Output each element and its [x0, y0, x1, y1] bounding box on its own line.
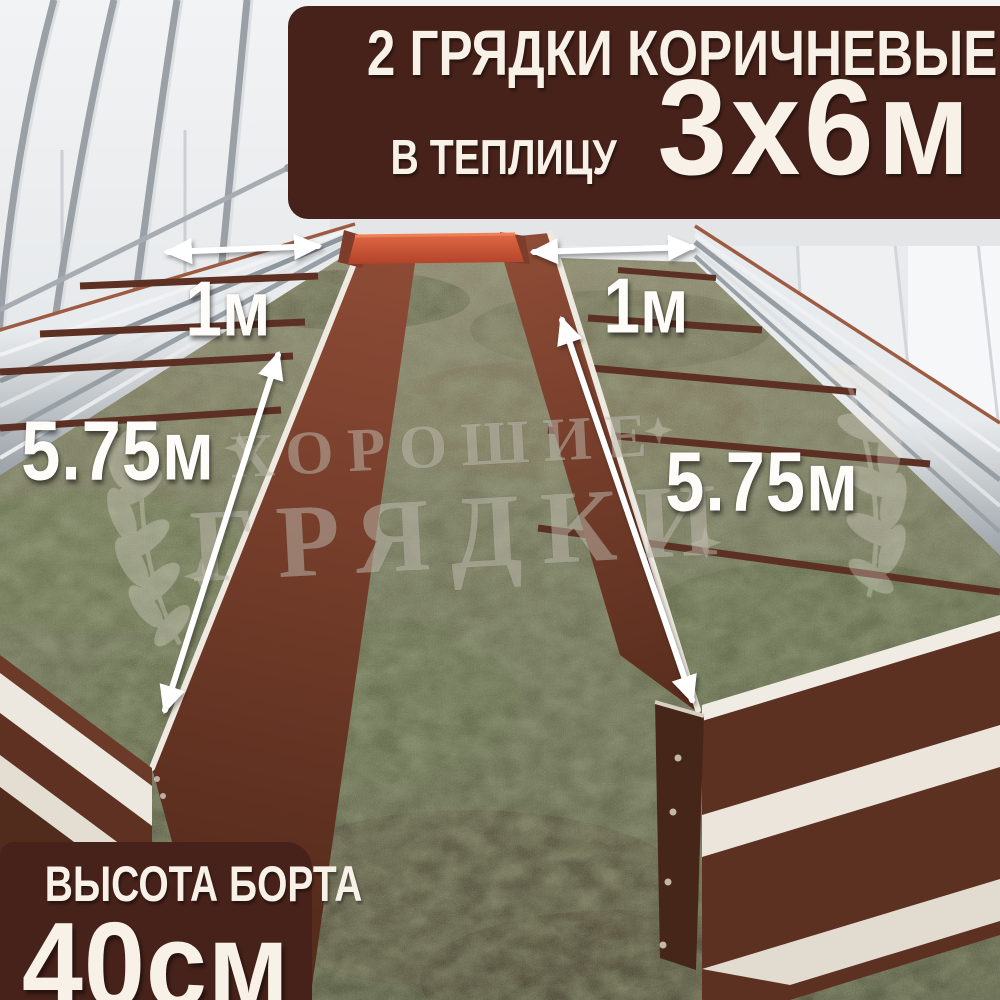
bottom-banner-value: 40см — [0, 909, 312, 1000]
dimension-label-left-length: 5.75м — [3, 403, 234, 500]
top-banner: 2 ГРЯДКИ КОРИЧНЕВЫЕ В ТЕПЛИЦУ 3х6м — [288, 6, 1000, 219]
top-banner-greenhouse-size: 3х6м — [658, 63, 974, 192]
arrow-left-width — [168, 246, 318, 252]
dimension-label-right-width: 1м — [595, 261, 696, 352]
top-banner-greenhouse-label: В ТЕПЛИЦУ — [390, 130, 616, 186]
arrow-right-width — [534, 247, 692, 252]
bottom-banner: ВЫСОТА БОРТА 40см — [0, 842, 312, 1000]
product-image: ХОРОШИЕ ГРЯДКИ 1м 1м 5.75м 5.75м 2 ГРЯДК… — [0, 0, 1000, 1000]
dimension-label-left-width: 1м — [177, 264, 278, 355]
dimension-label-right-length: 5.75м — [647, 434, 878, 531]
